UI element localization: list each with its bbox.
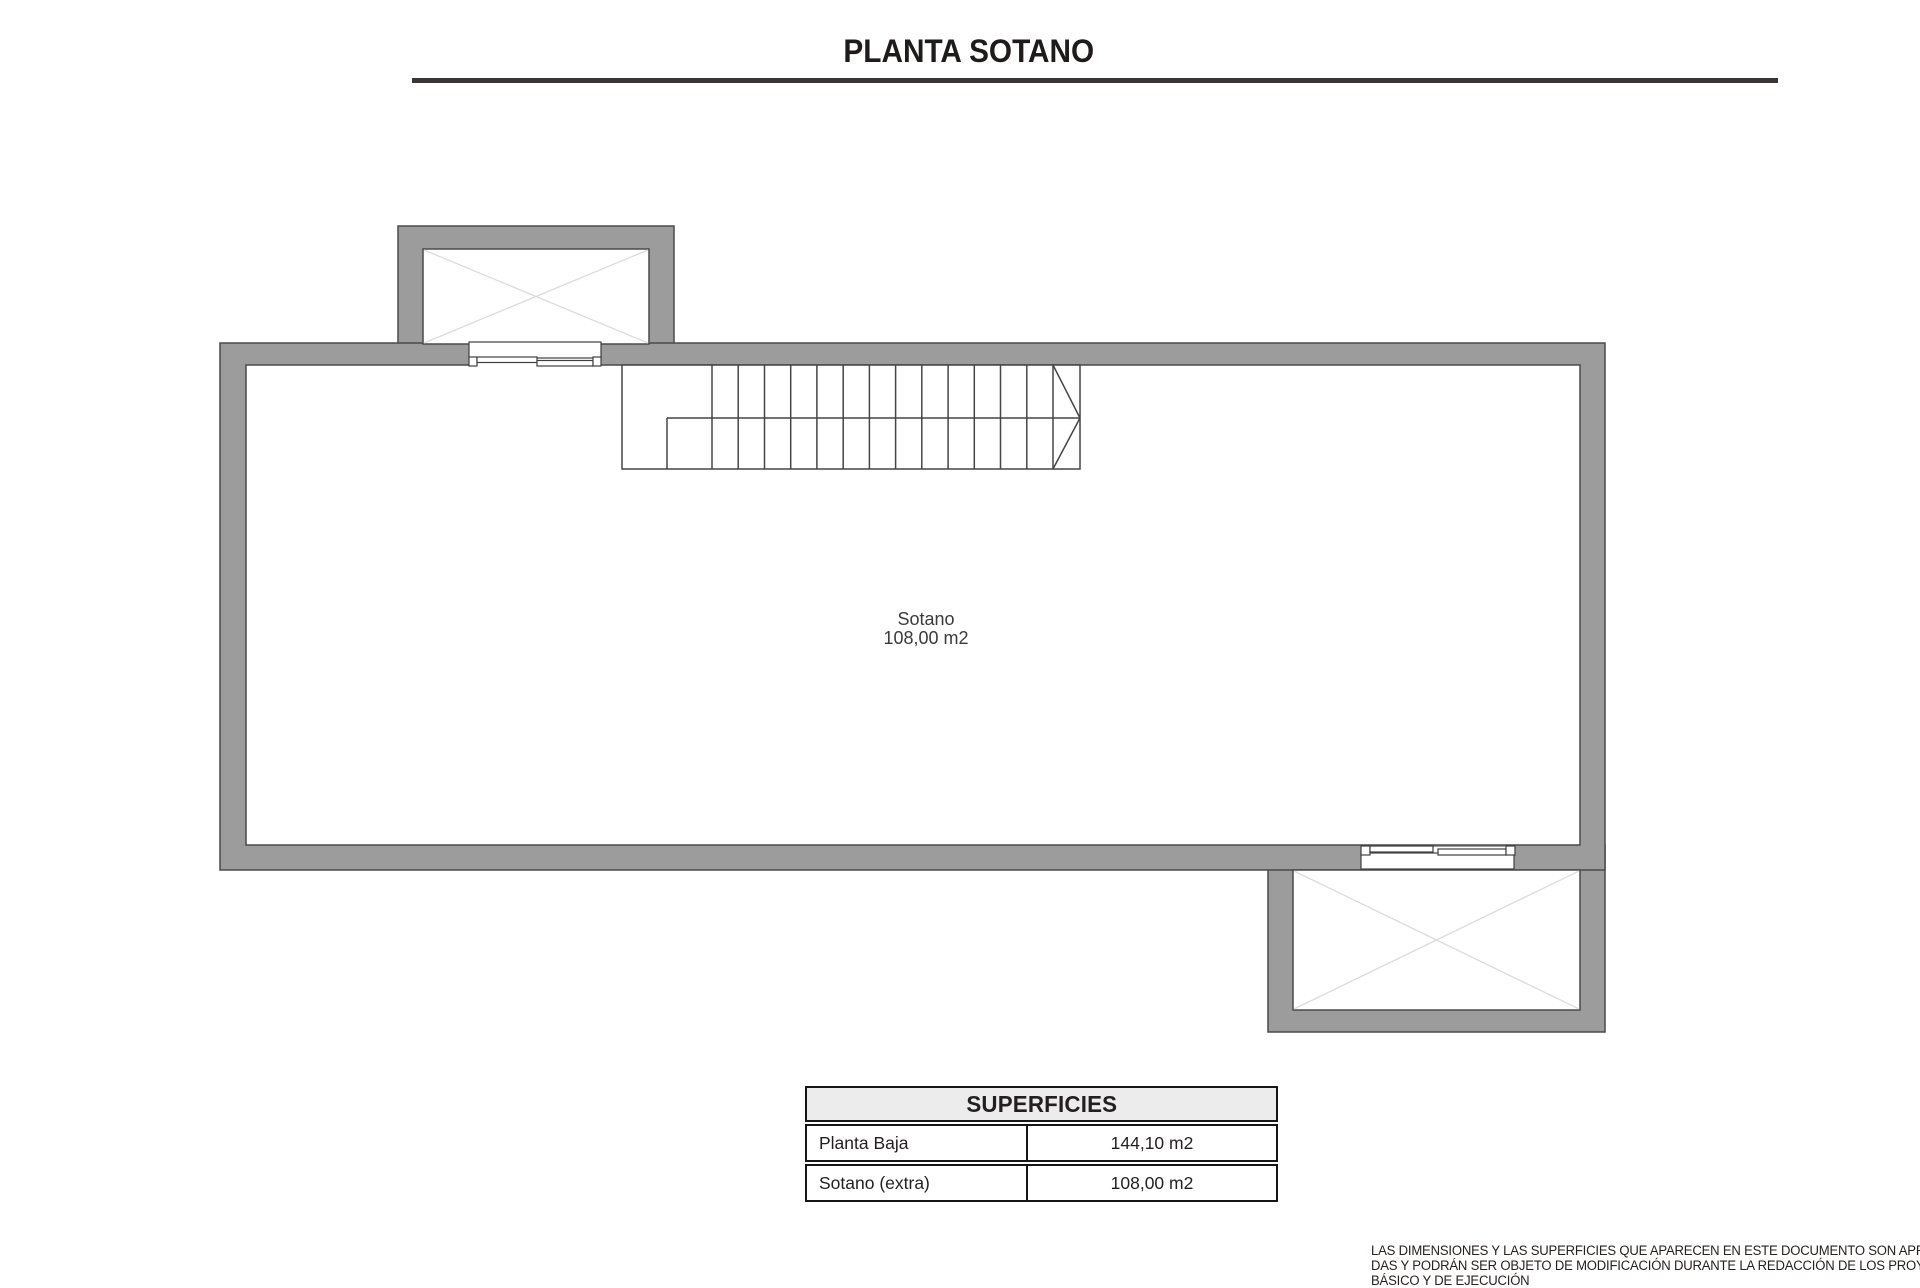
row-label: Planta Baja	[807, 1126, 1028, 1160]
table-row: Planta Baja 144,10 m2	[805, 1124, 1278, 1162]
door-top-left	[469, 342, 601, 366]
disclaimer-line: BÁSICO Y DE EJECUCIÓN	[1371, 1274, 1895, 1288]
door-opening-frame	[469, 342, 601, 358]
door-jamb	[1361, 846, 1370, 855]
door-panel	[1370, 846, 1433, 852]
surfaces-table-title: SUPERFICIES	[966, 1091, 1117, 1118]
door-jamb	[1506, 846, 1515, 855]
door-panel	[1438, 849, 1506, 855]
room-area: 108,00 m2	[826, 629, 1026, 648]
surfaces-table-header: SUPERFICIES	[805, 1086, 1278, 1122]
surfaces-table: SUPERFICIES Planta Baja 144,10 m2 Sotano…	[805, 1086, 1278, 1202]
row-value: 108,00 m2	[1028, 1166, 1276, 1200]
disclaimer-text: LAS DIMENSIONES Y LAS SUPERFICIES QUE AP…	[1371, 1244, 1895, 1288]
door-panel	[537, 361, 593, 367]
door-panel	[477, 357, 537, 363]
stair-outline	[622, 365, 1080, 469]
room-name: Sotano	[826, 610, 1026, 629]
room-label: Sotano 108,00 m2	[826, 610, 1026, 648]
door-jamb	[593, 357, 601, 366]
table-row: Sotano (extra) 108,00 m2	[805, 1164, 1278, 1202]
disclaimer-line: LAS DIMENSIONES Y LAS SUPERFICIES QUE AP…	[1371, 1244, 1895, 1259]
door-jamb	[469, 357, 477, 366]
door-bottom-right	[1361, 846, 1515, 869]
disclaimer-line: DAS Y PODRÁN SER OBJETO DE MODIFICACIÓN …	[1371, 1259, 1895, 1274]
staircase	[622, 365, 1080, 469]
row-label: Sotano (extra)	[807, 1166, 1028, 1200]
row-value: 144,10 m2	[1028, 1126, 1276, 1160]
